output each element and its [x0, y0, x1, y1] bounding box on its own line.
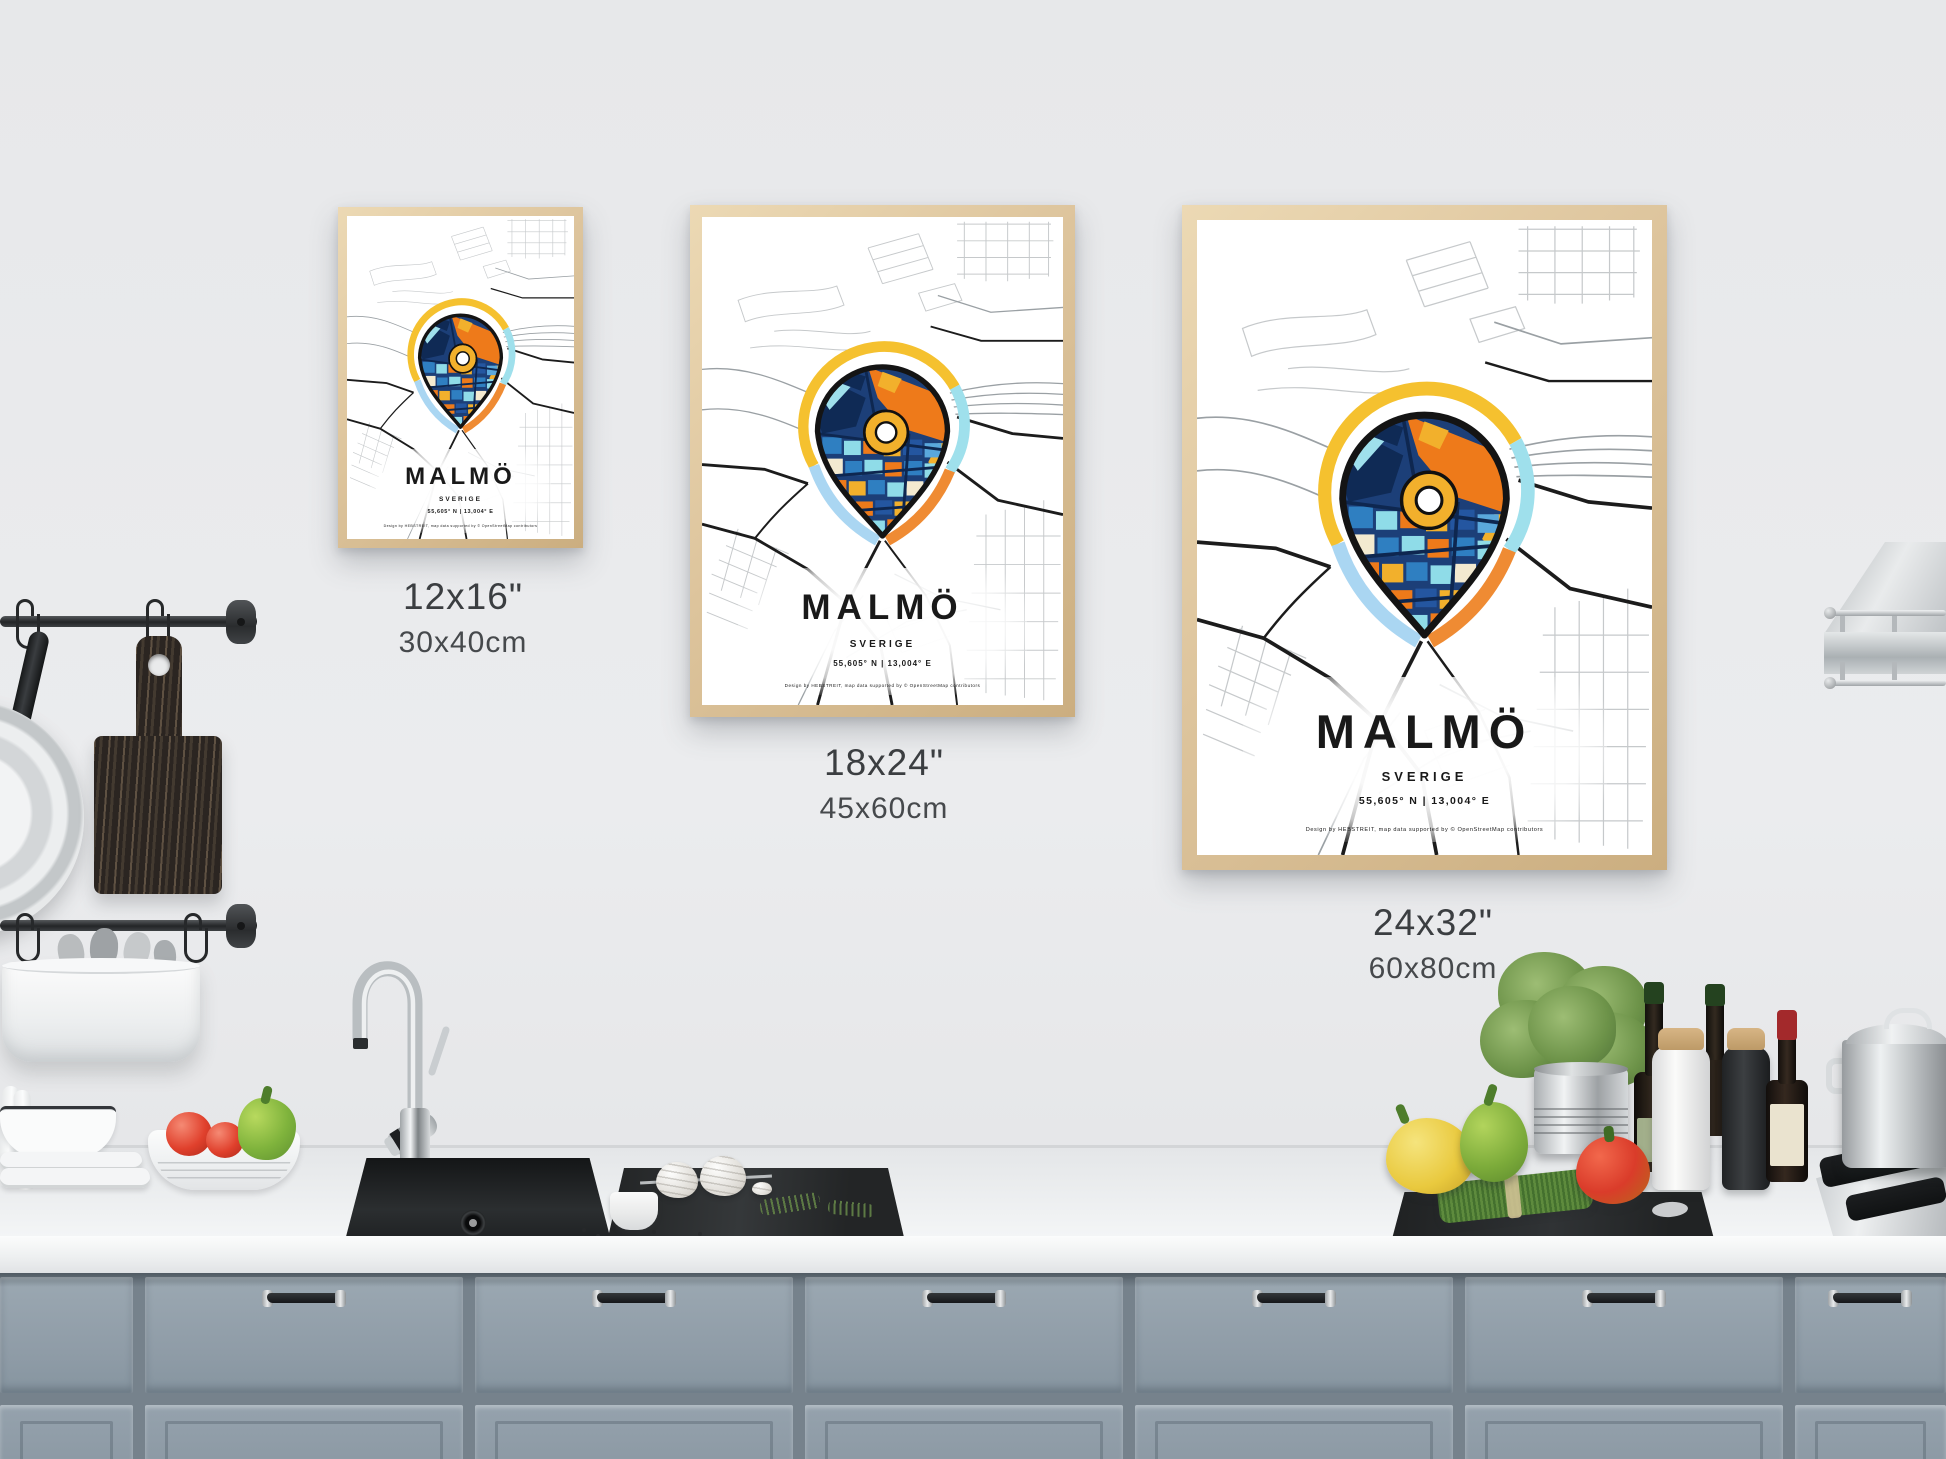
pepper-grinder [1722, 1046, 1770, 1190]
poster-city-title: MALMÖ [347, 463, 574, 491]
cabinet-drawer [805, 1277, 1123, 1393]
handle-bar [267, 1293, 341, 1303]
poster-frame-24x32: MALMÖ SVERIGE 55,605° N | 13,004° E Desi… [1182, 205, 1667, 870]
cabinet-door [805, 1405, 1123, 1459]
size-option-12x16: 12x16" 30x40cm [333, 576, 593, 660]
text-backdrop [1243, 677, 1607, 842]
poster-text-block: MALMÖ SVERIGE 55,605° N | 13,004° E Desi… [1197, 220, 1652, 855]
kitchen-cabinets [0, 1273, 1946, 1459]
cabinet-door [0, 1405, 133, 1459]
cabinet-door [475, 1405, 793, 1459]
wood-grain [136, 636, 182, 748]
sink-drain [460, 1210, 486, 1236]
grinder-wood-cap [1658, 1028, 1704, 1050]
cabinet-drawer [145, 1277, 463, 1393]
pot-lid-handle [1884, 1008, 1932, 1029]
poster-coordinates: 55,605° N | 13,004° E [1197, 795, 1652, 807]
range-hood-rail-top [1832, 610, 1946, 616]
grinder-wood-cap [1727, 1028, 1765, 1050]
size-option-18x24: 18x24" 45x60cm [754, 742, 1014, 826]
stacked-plate [0, 1168, 150, 1188]
tomato [166, 1112, 212, 1156]
poster-country: SVERIGE [347, 496, 574, 503]
under-counter-shadow [0, 1273, 1946, 1287]
cabinet-door [1135, 1405, 1453, 1459]
size-inches: 18x24" [754, 742, 1014, 784]
poster-frame-12x16: MALMÖ SVERIGE 55,605° N | 13,004° E Desi… [338, 207, 583, 548]
handle-post [995, 1290, 1006, 1307]
size-centimeters: 45x60cm [754, 792, 1014, 826]
poster-paper: MALMÖ SVERIGE 55,605° N | 13,004° E Desi… [702, 217, 1063, 705]
pepper-stem [1395, 1103, 1411, 1125]
handle-post [1655, 1290, 1666, 1307]
handle-post [335, 1290, 346, 1307]
red-bell-pepper [1576, 1136, 1650, 1204]
peppercorns [582, 1228, 586, 1232]
poster-city-title: MALMÖ [1197, 704, 1652, 759]
cabinet-end-panel [0, 1277, 133, 1393]
drawer-handle [1582, 1290, 1666, 1308]
small-white-cup [610, 1192, 658, 1230]
kitchen-mockup-scene: MALMÖ SVERIGE 55,605° N | 13,004° E Desi… [0, 0, 1946, 1459]
cabinet-door [1465, 1405, 1783, 1459]
poster-country: SVERIGE [1197, 769, 1652, 784]
cabinet-drawer [1465, 1277, 1783, 1393]
rail-mount [226, 600, 256, 644]
poster-country: SVERIGE [702, 639, 1063, 650]
green-pepper-in-bowl [238, 1098, 296, 1160]
wine-capsule [1777, 1010, 1797, 1040]
poster-credit-line: Design by HEBSTREIT, map data supported … [702, 683, 1063, 688]
poster-text-block: MALMÖ SVERIGE 55,605° N | 13,004° E Desi… [347, 216, 574, 539]
handle-bar [1833, 1293, 1907, 1303]
size-inches: 24x32" [1303, 902, 1563, 944]
garlic-bulb [700, 1156, 746, 1196]
cabinet-door [145, 1405, 463, 1459]
cutting-board-hole [148, 654, 170, 676]
drawer-handle [592, 1290, 676, 1308]
stock-pot [1842, 1040, 1946, 1168]
drawer-handle [922, 1290, 1006, 1308]
frying-pan [0, 700, 84, 936]
range-hood-rail-bottom [1832, 680, 1946, 686]
cabinet-drawer [1795, 1277, 1946, 1393]
handle-bar [927, 1293, 1001, 1303]
counter-front-edge [0, 1236, 1946, 1274]
garlic-clove [752, 1182, 772, 1195]
green-bell-pepper [1460, 1102, 1528, 1182]
garlic-bulb [656, 1162, 698, 1198]
wine-label [1770, 1104, 1804, 1166]
pepper-stem [1603, 1126, 1615, 1143]
herb-plant [1528, 986, 1616, 1068]
cabinet-door [1795, 1405, 1946, 1459]
drawer-handle [1828, 1290, 1912, 1308]
stacked-bowl [0, 1106, 116, 1158]
handle-post [1325, 1290, 1336, 1307]
rail-mount [226, 904, 256, 948]
cabinet-drawer [475, 1277, 793, 1393]
drawer-handle [1252, 1290, 1336, 1308]
poster-credit-line: Design by HEBSTREIT, map data supported … [1197, 827, 1652, 833]
size-inches: 12x16" [333, 576, 593, 618]
poster-city-title: MALMÖ [702, 588, 1063, 628]
handle-post [665, 1290, 676, 1307]
poster-paper: MALMÖ SVERIGE 55,605° N | 13,004° E Desi… [347, 216, 574, 539]
handle-bar [597, 1293, 671, 1303]
poster-coordinates: 55,605° N | 13,004° E [702, 659, 1063, 668]
s-hook [184, 928, 208, 963]
poster-paper: MALMÖ SVERIGE 55,605° N | 13,004° E Desi… [1197, 220, 1652, 855]
cutting-board-handle [136, 636, 182, 748]
cabinet-drawer [1135, 1277, 1453, 1393]
poster-frame-18x24: MALMÖ SVERIGE 55,605° N | 13,004° E Desi… [690, 205, 1075, 717]
cutting-board [94, 736, 222, 894]
handle-post [1901, 1290, 1912, 1307]
handle-bar [1257, 1293, 1331, 1303]
poster-credit-line: Design by HEBSTREIT, map data supported … [347, 524, 574, 528]
hanging-utensil-bin [2, 962, 200, 1062]
s-hook [16, 928, 40, 963]
poster-text-block: MALMÖ SVERIGE 55,605° N | 13,004° E Desi… [702, 217, 1063, 705]
poster-coordinates: 55,605° N | 13,004° E [347, 509, 574, 515]
bottle-cap [1705, 984, 1725, 1006]
wood-grain [94, 736, 222, 894]
handle-bar [1587, 1293, 1661, 1303]
size-centimeters: 30x40cm [333, 626, 593, 660]
bottle-cap [1644, 982, 1664, 1004]
kitchen-faucet [340, 912, 490, 1187]
drawer-handle [262, 1290, 346, 1308]
salt-grinder [1652, 1046, 1710, 1190]
